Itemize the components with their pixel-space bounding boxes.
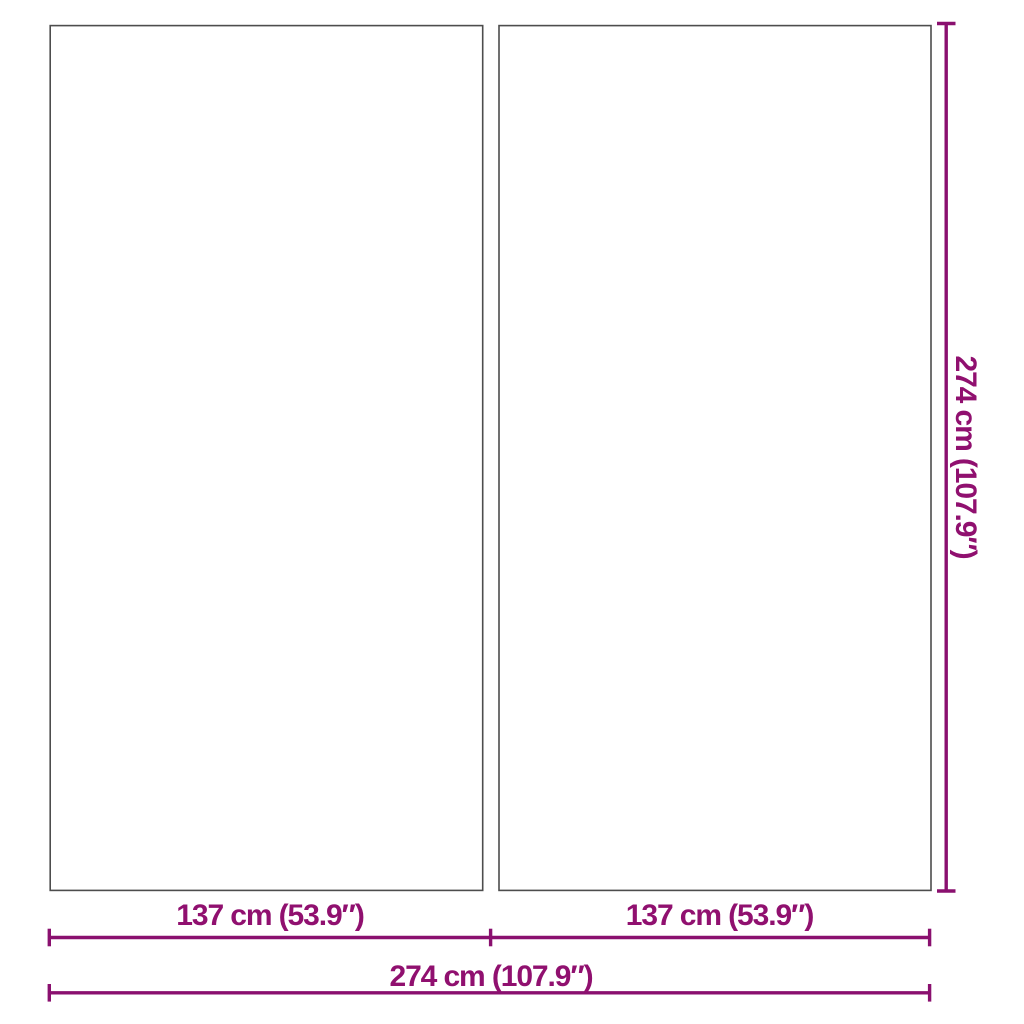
svg-text:137 cm (53.9″): 137 cm (53.9″) [626, 899, 814, 932]
svg-text:274 cm (107.9″): 274 cm (107.9″) [389, 960, 592, 993]
svg-text:274 cm (107.9″): 274 cm (107.9″) [949, 355, 982, 558]
svg-text:137 cm (53.9″): 137 cm (53.9″) [176, 899, 364, 932]
